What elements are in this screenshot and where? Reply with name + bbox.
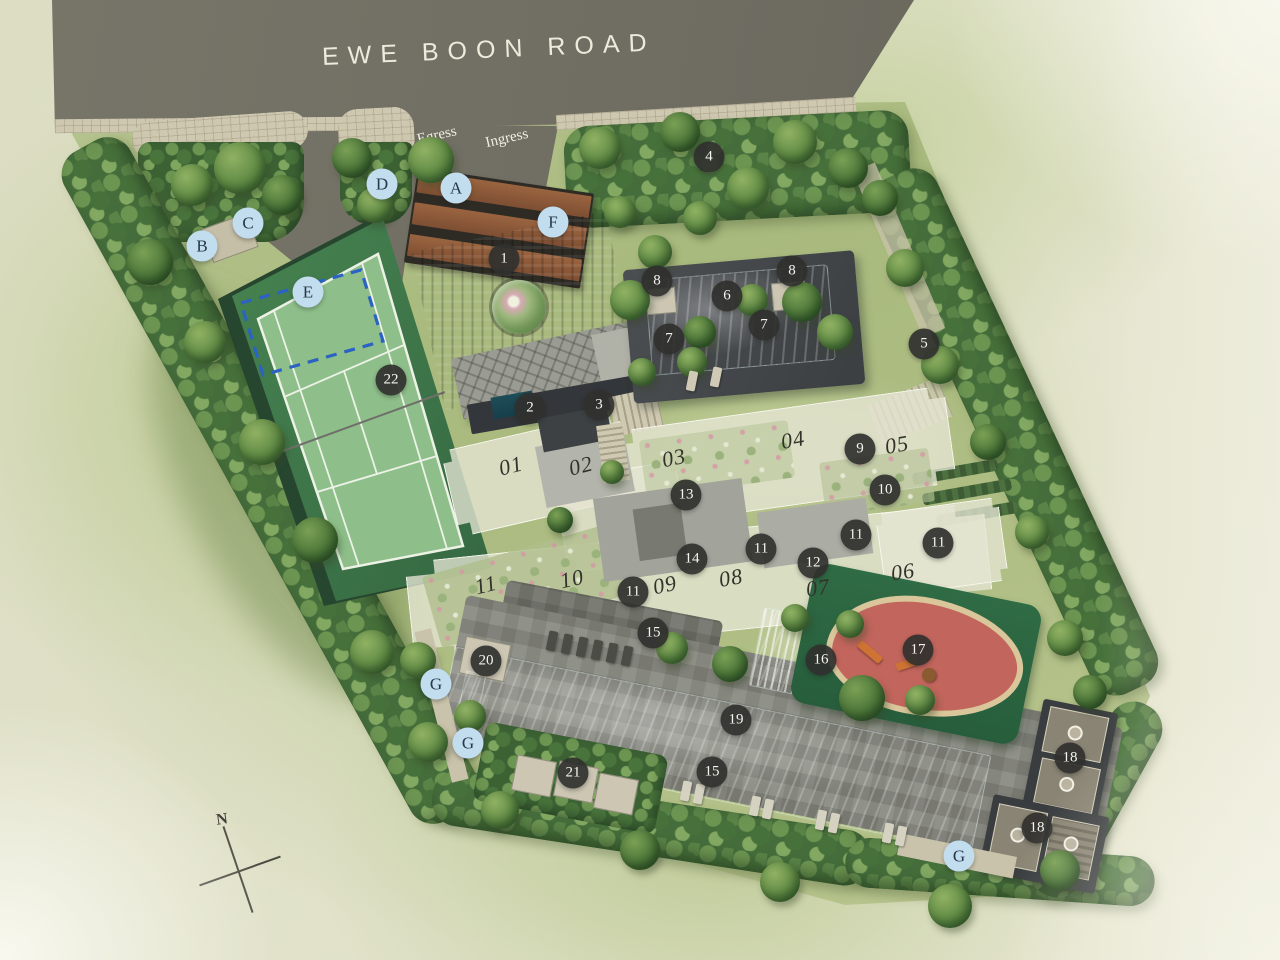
facility-marker-G: G	[944, 841, 975, 872]
legend-marker-20: 20	[471, 646, 502, 677]
legend-marker-8: 8	[642, 266, 673, 297]
legend-marker-8: 8	[777, 256, 808, 287]
tree	[684, 316, 716, 348]
legend-marker-18: 18	[1055, 743, 1086, 774]
dining-pavilion	[511, 755, 557, 798]
legend-marker-15: 15	[638, 618, 669, 649]
legend-marker-13: 13	[671, 480, 702, 511]
tree	[579, 127, 621, 169]
tree	[828, 148, 868, 188]
legend-marker-2: 2	[515, 393, 546, 424]
site-plan: N EWE BOON ROAD Egress Ingress ABCDEFGGG…	[0, 0, 1280, 960]
tree	[620, 830, 660, 870]
tree	[839, 675, 885, 721]
tree	[547, 507, 573, 533]
tree	[970, 424, 1006, 460]
tree	[1047, 620, 1083, 656]
tree	[905, 685, 935, 715]
tree	[817, 314, 853, 350]
legend-marker-11: 11	[746, 534, 777, 565]
facility-marker-G: G	[421, 669, 452, 700]
legend-marker-9: 9	[845, 434, 876, 465]
unit-stack-label-10: 10	[558, 564, 587, 594]
facility-marker-D: D	[367, 169, 398, 200]
unit-stack-label-07: 07	[804, 573, 831, 602]
unit-stack-label-06: 06	[889, 557, 916, 586]
legend-marker-4: 4	[694, 142, 725, 173]
tree	[481, 791, 519, 829]
tree	[262, 175, 302, 215]
tree	[408, 722, 448, 762]
legend-marker-11: 11	[618, 577, 649, 608]
tree	[1015, 515, 1049, 549]
tree	[239, 419, 285, 465]
tree	[928, 884, 972, 928]
tree	[660, 112, 700, 152]
legend-marker-6: 6	[712, 281, 743, 312]
tree	[862, 180, 898, 216]
tree	[604, 196, 636, 228]
dining-pavilion	[593, 773, 639, 816]
legend-marker-15: 15	[697, 757, 728, 788]
tree	[292, 517, 338, 563]
legend-marker-21: 21	[558, 758, 589, 789]
tree	[628, 358, 656, 386]
legend-marker-11: 11	[923, 528, 954, 559]
unit-stack-label-04: 04	[779, 425, 807, 455]
legend-marker-10: 10	[870, 475, 901, 506]
tree	[127, 239, 173, 285]
unit-stack-label-05: 05	[883, 430, 911, 460]
play-equipment	[922, 668, 936, 682]
facility-marker-C: C	[233, 208, 264, 239]
tree	[727, 167, 769, 209]
tree	[760, 862, 800, 902]
tree	[350, 630, 394, 674]
legend-marker-17: 17	[903, 635, 934, 666]
legend-marker-3: 3	[584, 390, 615, 421]
legend-marker-14: 14	[677, 544, 708, 575]
legend-marker-1: 1	[489, 244, 520, 275]
tree	[781, 604, 809, 632]
tree	[712, 646, 748, 682]
unit-stack-label-09: 09	[651, 570, 680, 600]
tree	[1040, 850, 1080, 890]
tree	[171, 164, 213, 206]
facility-marker-G: G	[453, 728, 484, 759]
legend-marker-7: 7	[749, 310, 780, 341]
unit-stack-label-03: 03	[660, 443, 689, 473]
tree	[683, 201, 717, 235]
tree	[600, 460, 624, 484]
tree	[214, 142, 266, 194]
legend-marker-7: 7	[654, 324, 685, 355]
tree	[782, 282, 822, 322]
legend-marker-22: 22	[376, 365, 407, 396]
legend-marker-5: 5	[909, 329, 940, 360]
facility-marker-A: A	[441, 173, 472, 204]
flower-roundabout	[492, 280, 546, 334]
unit-stack-label-08: 08	[717, 563, 745, 593]
tree	[184, 321, 226, 363]
legend-marker-18: 18	[1022, 813, 1053, 844]
facility-marker-B: B	[187, 231, 218, 262]
tree	[638, 235, 672, 269]
tree	[836, 610, 864, 638]
tree	[886, 249, 924, 287]
legend-marker-19: 19	[721, 705, 752, 736]
legend-marker-11: 11	[841, 520, 872, 551]
tree	[332, 138, 372, 178]
tree	[1073, 675, 1107, 709]
facility-marker-E: E	[293, 277, 324, 308]
legend-marker-16: 16	[806, 645, 837, 676]
tree	[773, 120, 817, 164]
facility-marker-F: F	[538, 207, 569, 238]
compass-north-label: N	[215, 810, 229, 829]
